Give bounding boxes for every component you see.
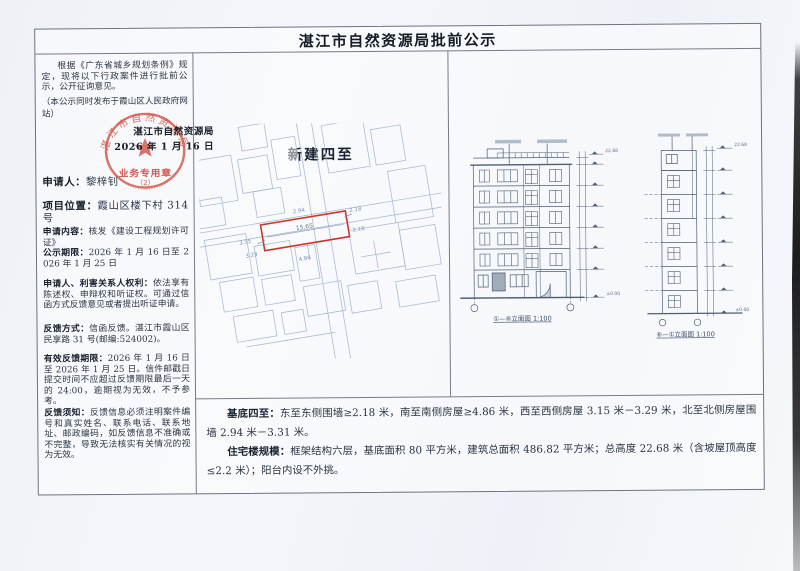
building-scale-paragraph: 住宅楼规模：框架结构六层，基底面积 80 平方米，建筑总面积 486.82 平方… xyxy=(206,439,756,481)
dim-north: 2.94 xyxy=(292,207,306,215)
notice-sheet: 湛江市自然资源局批前公示 根据《广东省城乡规划条例》规定，现将以下行政案件进行批… xyxy=(34,23,765,496)
paragraph-label: 基底四至： xyxy=(227,408,280,420)
dim-west-1: 3.15 xyxy=(239,239,253,247)
field-rights: 申请人、利害关系人权利：依法享有陈述权、申辩权和听证权。可通过信函方式反馈意见或… xyxy=(43,278,189,311)
paragraph-text: 东至东侧围墙≥2.18 米，南至南侧房屋≥4.86 米，西至西侧房屋 3.15 … xyxy=(206,404,756,439)
side-elevation-caption: ⑥—①立面图 1:100 xyxy=(656,329,715,338)
field-application: 申请内容：核发《建设工程规划许可证》 xyxy=(43,226,189,248)
field-feedback-method: 反馈方式：信函反馈。湛江市霞山区民享路 31 号(邮编:524002)。 xyxy=(44,323,190,345)
column-divider-right xyxy=(447,50,451,396)
field-label: 公示期限： xyxy=(43,248,89,258)
bottom-row-divider xyxy=(195,394,763,399)
field-location: 项目位置：霞山区楼下村 314 号 xyxy=(43,199,189,224)
field-label: 项目位置： xyxy=(43,200,98,212)
field-label: 反馈方式： xyxy=(44,324,90,334)
stamp-date-line: 2026 年 1 月 16 日 xyxy=(64,140,214,156)
side-elevation-drawing: 22.68 ±0.00 ⑥—①立面图 1:100 xyxy=(636,128,764,351)
field-value: 黎梓钊 xyxy=(86,176,119,188)
dim-east-2: 2.18 xyxy=(352,226,366,234)
stamp-agency-line: 湛江市自然资源局 xyxy=(64,125,214,141)
front-elevation-drawing: 22.68 ±0.00 ①—⑥立面图 1:100 xyxy=(451,121,631,334)
front-zero-level-label: ±0.00 xyxy=(606,291,620,297)
dim-east-1: 2.18 xyxy=(349,206,363,214)
front-elevation-caption: ①—⑥立面图 1:100 xyxy=(493,314,552,323)
scan-edge-shadow xyxy=(792,42,800,571)
site-bounds-paragraph: 基底四至：东至东侧围墙≥2.18 米，南至南侧房屋≥4.86 米，西至西侧房屋 … xyxy=(206,401,756,443)
side-zero-level-label: ±0.00 xyxy=(735,307,749,313)
bottom-summary: 基底四至：东至东侧围墙≥2.18 米，南至南侧房屋≥4.86 米，西至西侧房屋 … xyxy=(206,401,757,481)
field-notice-period: 公示期限：2026 年 1 月 16 日至 2026 年 1 月 25 日 xyxy=(43,247,189,269)
field-feedback-notes: 反馈须知：反馈信息必须注明案件编号和真实姓名、联系电话、联系地址、邮政编码，如反… xyxy=(44,407,190,461)
stamp-agency-date: 湛江市自然资源局 2026 年 1 月 16 日 xyxy=(64,125,214,155)
front-top-level-label: 22.68 xyxy=(605,148,618,154)
site-plan-map: 15.65 2.18 2.18 3.15 3.29 4.86 2.94 xyxy=(199,122,443,359)
side-top-level-label: 22.68 xyxy=(734,142,747,148)
field-label: 申请人、利害关系人权利： xyxy=(43,279,153,290)
field-label: 申请内容： xyxy=(43,227,89,237)
plot-length-label: 15.65 xyxy=(295,222,313,232)
field-label: 申请人： xyxy=(42,176,86,188)
field-label: 有效反馈期限： xyxy=(44,354,108,365)
field-applicant: 申请人：黎梓钊 xyxy=(42,175,188,188)
field-feedback-deadline: 有效反馈期限：2026 年 1 月 16 日至 2026 年 1 月 25 日。… xyxy=(44,353,190,407)
dim-west-2: 3.29 xyxy=(245,252,259,260)
intro-paragraph: 根据《广东省城乡规划条例》规定，现将以下行政案件进行批前公示，公开征询意见。 xyxy=(41,60,187,93)
field-label: 反馈须知： xyxy=(44,408,90,418)
paragraph-label: 住宅楼规模： xyxy=(227,446,290,458)
